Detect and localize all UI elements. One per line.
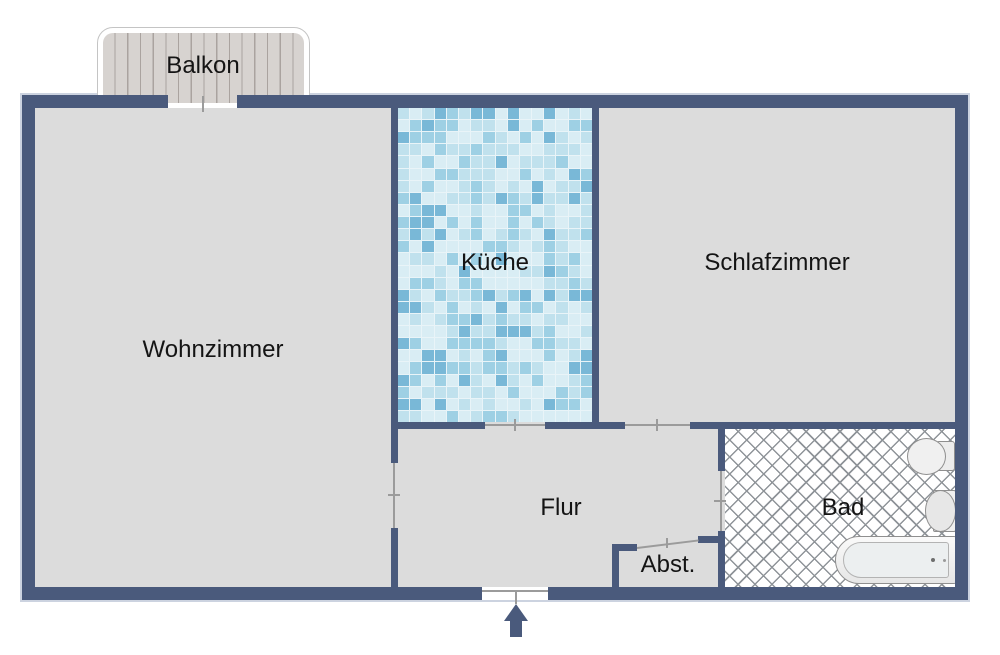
kitchen-tile bbox=[508, 205, 519, 216]
kitchen-tile bbox=[581, 387, 592, 398]
wall-wohnzimmer-kueche-flur-upper bbox=[391, 108, 398, 463]
kitchen-tile bbox=[459, 120, 470, 131]
kitchen-tile bbox=[471, 229, 482, 240]
room-label-bad: Bad bbox=[822, 494, 865, 522]
kitchen-tile bbox=[422, 132, 433, 143]
kitchen-tile bbox=[422, 399, 433, 410]
kitchen-tile bbox=[435, 338, 446, 349]
kitchen-tile bbox=[581, 411, 592, 422]
kitchen-tile bbox=[422, 266, 433, 277]
kitchen-tile bbox=[435, 302, 446, 313]
kitchen-tile bbox=[556, 253, 567, 264]
kitchen-tile bbox=[410, 338, 421, 349]
kitchen-tile bbox=[435, 217, 446, 228]
kitchen-tile bbox=[532, 411, 543, 422]
kitchen-tile bbox=[410, 108, 421, 119]
kitchen-tile bbox=[459, 290, 470, 301]
kitchen-tile bbox=[471, 350, 482, 361]
wall-wohnzimmer-flur-lower bbox=[391, 528, 398, 587]
kitchen-tile bbox=[398, 241, 409, 252]
kitchen-tile bbox=[532, 266, 543, 277]
kitchen-tile bbox=[556, 169, 567, 180]
kitchen-tile bbox=[496, 411, 507, 422]
kitchen-tile bbox=[410, 375, 421, 386]
kitchen-tile bbox=[398, 253, 409, 264]
kitchen-tile bbox=[398, 362, 409, 373]
kitchen-tile bbox=[483, 278, 494, 289]
kitchen-tile bbox=[544, 120, 555, 131]
kitchen-tile bbox=[435, 266, 446, 277]
kitchen-tile bbox=[435, 144, 446, 155]
kitchen-tile bbox=[520, 193, 531, 204]
kitchen-tile bbox=[410, 387, 421, 398]
kitchen-tile bbox=[556, 241, 567, 252]
kitchen-tile bbox=[398, 156, 409, 167]
kitchen-tile bbox=[422, 108, 433, 119]
kitchen-tile bbox=[581, 132, 592, 143]
room-label-kueche: Küche bbox=[461, 249, 529, 277]
kitchen-tile bbox=[569, 326, 580, 337]
kitchen-tile bbox=[422, 205, 433, 216]
kitchen-tile bbox=[435, 229, 446, 240]
kueche-door-tick bbox=[514, 419, 516, 431]
kitchen-tile bbox=[471, 156, 482, 167]
kitchen-tile bbox=[410, 326, 421, 337]
kitchen-tile bbox=[556, 144, 567, 155]
kitchen-tile bbox=[520, 229, 531, 240]
kitchen-tile bbox=[496, 399, 507, 410]
kitchen-tile bbox=[435, 181, 446, 192]
kitchen-tile bbox=[422, 290, 433, 301]
kitchen-tile bbox=[496, 169, 507, 180]
kitchen-tile bbox=[520, 278, 531, 289]
kitchen-tile bbox=[447, 290, 458, 301]
kitchen-tile bbox=[508, 290, 519, 301]
kitchen-tile bbox=[520, 338, 531, 349]
kitchen-tile bbox=[410, 302, 421, 313]
kitchen-tile bbox=[496, 290, 507, 301]
kitchen-tile bbox=[544, 156, 555, 167]
kitchen-tile bbox=[447, 108, 458, 119]
kitchen-tile bbox=[556, 108, 567, 119]
kitchen-tile bbox=[532, 278, 543, 289]
kitchen-tile bbox=[556, 156, 567, 167]
kitchen-tile bbox=[483, 362, 494, 373]
kitchen-tile bbox=[447, 362, 458, 373]
wall-outer-left bbox=[22, 95, 35, 600]
kitchen-tile bbox=[422, 120, 433, 131]
wall-outer-top-left bbox=[22, 95, 168, 108]
kitchen-tile bbox=[459, 350, 470, 361]
kitchen-tile bbox=[569, 193, 580, 204]
schlafzimmer-door-tick bbox=[656, 419, 658, 431]
kitchen-tile bbox=[508, 193, 519, 204]
kitchen-tile bbox=[435, 290, 446, 301]
kitchen-tile bbox=[556, 338, 567, 349]
wall-abstellraum-top-left-stub bbox=[612, 544, 637, 551]
kitchen-tile bbox=[410, 217, 421, 228]
kitchen-tile bbox=[532, 156, 543, 167]
kitchen-tile bbox=[508, 278, 519, 289]
kitchen-tile bbox=[471, 387, 482, 398]
kitchen-tile bbox=[398, 108, 409, 119]
kitchen-tile bbox=[581, 290, 592, 301]
kitchen-tile bbox=[398, 302, 409, 313]
kitchen-tile bbox=[447, 217, 458, 228]
kitchen-tile bbox=[483, 156, 494, 167]
kitchen-tile bbox=[520, 399, 531, 410]
kitchen-tile bbox=[459, 278, 470, 289]
kitchen-tile bbox=[508, 169, 519, 180]
kitchen-tile bbox=[410, 120, 421, 131]
kitchen-tile bbox=[398, 375, 409, 386]
kitchen-tile bbox=[520, 302, 531, 313]
kitchen-tile bbox=[544, 266, 555, 277]
kitchen-tile bbox=[496, 120, 507, 131]
kitchen-tile bbox=[435, 120, 446, 131]
wall-abstellraum-left bbox=[612, 545, 619, 587]
kitchen-tile bbox=[483, 411, 494, 422]
kitchen-tile bbox=[496, 350, 507, 361]
kitchen-tile bbox=[410, 253, 421, 264]
kitchen-tile bbox=[447, 253, 458, 264]
kitchen-tile bbox=[520, 290, 531, 301]
kitchen-tile bbox=[569, 241, 580, 252]
kitchen-tile bbox=[544, 362, 555, 373]
kitchen-tile bbox=[459, 205, 470, 216]
kitchen-tile bbox=[447, 156, 458, 167]
kitchen-tile bbox=[435, 399, 446, 410]
kitchen-tile bbox=[581, 326, 592, 337]
room-label-wohnzimmer: Wohnzimmer bbox=[143, 336, 284, 364]
wohnzimmer-door-tick bbox=[388, 494, 400, 496]
kitchen-tile bbox=[471, 217, 482, 228]
kitchen-tile bbox=[581, 229, 592, 240]
kitchen-tile bbox=[556, 350, 567, 361]
kitchen-tile bbox=[410, 132, 421, 143]
kitchen-tile bbox=[544, 205, 555, 216]
kitchen-tile bbox=[556, 193, 567, 204]
kitchen-tile bbox=[508, 120, 519, 131]
kitchen-tile bbox=[520, 144, 531, 155]
kitchen-tile bbox=[459, 338, 470, 349]
bathtub-drain bbox=[931, 558, 935, 562]
kitchen-tile bbox=[398, 266, 409, 277]
kitchen-tile bbox=[556, 399, 567, 410]
kitchen-tile bbox=[496, 156, 507, 167]
kitchen-tile bbox=[435, 241, 446, 252]
kitchen-tile bbox=[581, 217, 592, 228]
kitchen-tile bbox=[581, 193, 592, 204]
kitchen-tile bbox=[447, 241, 458, 252]
kitchen-tile bbox=[532, 169, 543, 180]
kitchen-tile bbox=[544, 411, 555, 422]
kitchen-tile bbox=[410, 181, 421, 192]
kitchen-tile bbox=[422, 278, 433, 289]
kitchen-tile bbox=[459, 302, 470, 313]
kitchen-tile bbox=[508, 156, 519, 167]
kitchen-tile bbox=[422, 350, 433, 361]
kitchen-tile bbox=[422, 217, 433, 228]
kitchen-tile bbox=[422, 375, 433, 386]
kitchen-tile bbox=[569, 387, 580, 398]
kitchen-tile bbox=[569, 266, 580, 277]
kitchen-tile bbox=[520, 350, 531, 361]
kitchen-tile bbox=[435, 387, 446, 398]
kitchen-tile bbox=[410, 411, 421, 422]
entrance-door-tick bbox=[515, 590, 517, 604]
kitchen-tile bbox=[435, 156, 446, 167]
kitchen-tile bbox=[544, 132, 555, 143]
kitchen-tile bbox=[483, 205, 494, 216]
room-label-schlafzimmer: Schlafzimmer bbox=[704, 249, 849, 277]
kitchen-tile bbox=[532, 362, 543, 373]
kitchen-tile bbox=[532, 314, 543, 325]
kitchen-tile bbox=[459, 326, 470, 337]
kitchen-tile bbox=[471, 278, 482, 289]
kitchen-tile bbox=[435, 253, 446, 264]
kitchen-tile bbox=[398, 314, 409, 325]
kitchen-tile bbox=[556, 205, 567, 216]
kitchen-tile bbox=[496, 108, 507, 119]
kitchen-tile bbox=[471, 314, 482, 325]
kitchen-tile bbox=[569, 362, 580, 373]
kitchen-tile bbox=[471, 302, 482, 313]
kitchen-tile bbox=[447, 399, 458, 410]
kitchen-tile bbox=[483, 120, 494, 131]
kitchen-tile bbox=[422, 387, 433, 398]
kitchen-tile bbox=[581, 375, 592, 386]
kitchen-tile bbox=[569, 302, 580, 313]
kitchen-tile bbox=[483, 193, 494, 204]
kitchen-tile bbox=[569, 156, 580, 167]
kitchen-tile bbox=[569, 169, 580, 180]
kitchen-tile bbox=[410, 156, 421, 167]
kitchen-tile bbox=[447, 350, 458, 361]
kitchen-tile bbox=[459, 362, 470, 373]
kitchen-tile bbox=[398, 338, 409, 349]
kitchen-tile bbox=[532, 387, 543, 398]
kitchen-tile bbox=[532, 375, 543, 386]
wall-outer-right bbox=[955, 95, 968, 600]
kitchen-tile bbox=[435, 411, 446, 422]
kitchen-tile bbox=[447, 169, 458, 180]
room-label-balkon: Balkon bbox=[166, 52, 239, 80]
kitchen-tile bbox=[532, 144, 543, 155]
kitchen-tile bbox=[556, 278, 567, 289]
floor-plan: Balkon Wohnzimmer Küche Schla bbox=[0, 0, 1000, 655]
kitchen-tile bbox=[520, 217, 531, 228]
kitchen-tile bbox=[544, 193, 555, 204]
kitchen-tile bbox=[556, 375, 567, 386]
kitchen-tile bbox=[471, 132, 482, 143]
kitchen-tile bbox=[483, 217, 494, 228]
kitchen-tile bbox=[520, 132, 531, 143]
kitchen-tile bbox=[520, 326, 531, 337]
kitchen-tile bbox=[496, 229, 507, 240]
kitchen-tile bbox=[544, 338, 555, 349]
kitchen-tile bbox=[532, 241, 543, 252]
kitchen-tile bbox=[556, 132, 567, 143]
kitchen-tile bbox=[520, 169, 531, 180]
kitchen-tile bbox=[422, 338, 433, 349]
kitchen-tile bbox=[496, 205, 507, 216]
kitchen-tile bbox=[581, 205, 592, 216]
kitchen-tile bbox=[544, 302, 555, 313]
kitchen-tile bbox=[520, 375, 531, 386]
kitchen-tile bbox=[483, 144, 494, 155]
kitchen-tile bbox=[569, 399, 580, 410]
kitchen-tile bbox=[532, 326, 543, 337]
kitchen-tile bbox=[496, 314, 507, 325]
kitchen-tile bbox=[483, 229, 494, 240]
kitchen-tile bbox=[471, 193, 482, 204]
kitchen-tile bbox=[459, 181, 470, 192]
kitchen-tile bbox=[496, 181, 507, 192]
kitchen-tile bbox=[544, 314, 555, 325]
kitchen-tile bbox=[569, 290, 580, 301]
kitchen-tile bbox=[422, 156, 433, 167]
kitchen-tile bbox=[483, 399, 494, 410]
kitchen-tile bbox=[569, 314, 580, 325]
kitchen-tile bbox=[398, 217, 409, 228]
kitchen-tile bbox=[398, 144, 409, 155]
kitchen-tile bbox=[581, 350, 592, 361]
kitchen-tile bbox=[556, 362, 567, 373]
kitchen-tile bbox=[496, 144, 507, 155]
kitchen-tile bbox=[422, 302, 433, 313]
kitchen-tile bbox=[508, 338, 519, 349]
kitchen-tile bbox=[422, 144, 433, 155]
kitchen-tile bbox=[532, 229, 543, 240]
wall-kueche-flur-left bbox=[391, 422, 485, 429]
kitchen-tile bbox=[422, 253, 433, 264]
kitchen-tile bbox=[581, 278, 592, 289]
kitchen-tile bbox=[459, 193, 470, 204]
kitchen-tile bbox=[447, 229, 458, 240]
kitchen-tile bbox=[435, 205, 446, 216]
kitchen-tile bbox=[435, 278, 446, 289]
kitchen-tile bbox=[459, 387, 470, 398]
kitchen-tile bbox=[581, 181, 592, 192]
kitchen-tile bbox=[410, 314, 421, 325]
kitchen-tile bbox=[459, 375, 470, 386]
sink-icon bbox=[925, 490, 956, 532]
kitchen-tile bbox=[410, 399, 421, 410]
kitchen-tile bbox=[410, 278, 421, 289]
kitchen-tile bbox=[422, 411, 433, 422]
kitchen-tile bbox=[532, 217, 543, 228]
kitchen-tile bbox=[556, 217, 567, 228]
wall-schlafzimmer-bad-top bbox=[690, 422, 955, 429]
kitchen-tile bbox=[556, 120, 567, 131]
entrance-arrow-stem bbox=[510, 620, 522, 637]
kitchen-tile bbox=[569, 411, 580, 422]
kitchen-tile bbox=[496, 338, 507, 349]
kitchen-tile bbox=[508, 108, 519, 119]
kitchen-tile bbox=[496, 362, 507, 373]
kitchen-tile bbox=[483, 314, 494, 325]
kitchen-tile bbox=[422, 229, 433, 240]
kitchen-tile bbox=[447, 205, 458, 216]
abstellraum-door-tick bbox=[666, 538, 668, 548]
kitchen-tile bbox=[556, 229, 567, 240]
kitchen-tile bbox=[459, 156, 470, 167]
kitchen-tile bbox=[398, 229, 409, 240]
wall-outer-bottom-right bbox=[548, 587, 968, 600]
kitchen-tile bbox=[532, 205, 543, 216]
kitchen-tile bbox=[544, 217, 555, 228]
room-label-abstellraum: Abst. bbox=[641, 551, 696, 579]
kitchen-tile bbox=[532, 181, 543, 192]
kitchen-tile bbox=[508, 217, 519, 228]
kitchen-tile bbox=[483, 302, 494, 313]
kitchen-tile bbox=[471, 120, 482, 131]
kitchen-tile bbox=[447, 302, 458, 313]
kitchen-tile bbox=[459, 132, 470, 143]
kitchen-tile bbox=[459, 399, 470, 410]
kitchen-tile bbox=[496, 217, 507, 228]
kitchen-tile bbox=[556, 314, 567, 325]
kitchen-tile bbox=[447, 181, 458, 192]
kitchen-tile bbox=[483, 387, 494, 398]
kitchen-tile bbox=[447, 132, 458, 143]
wall-bad-left-upper bbox=[718, 429, 725, 471]
bathtub-faucet-dot bbox=[943, 559, 946, 562]
kitchen-tile bbox=[398, 181, 409, 192]
kitchen-tile bbox=[410, 229, 421, 240]
toilet-icon bbox=[907, 438, 946, 475]
kitchen-tile bbox=[496, 326, 507, 337]
kitchen-tile bbox=[544, 108, 555, 119]
kitchen-tile bbox=[459, 144, 470, 155]
kitchen-tile bbox=[569, 181, 580, 192]
kitchen-tile bbox=[569, 278, 580, 289]
kitchen-tile bbox=[520, 387, 531, 398]
kitchen-tile bbox=[422, 326, 433, 337]
kitchen-tile bbox=[569, 375, 580, 386]
kitchen-tile bbox=[532, 108, 543, 119]
kitchen-tile bbox=[410, 350, 421, 361]
kitchen-tile bbox=[398, 120, 409, 131]
kitchen-tile bbox=[508, 181, 519, 192]
kitchen-tile bbox=[569, 108, 580, 119]
kitchen-tile bbox=[496, 193, 507, 204]
kitchen-tile bbox=[459, 169, 470, 180]
wall-kueche-flur-right bbox=[545, 422, 625, 429]
kitchen-tile bbox=[544, 375, 555, 386]
kitchen-tile bbox=[556, 302, 567, 313]
kitchen-tile bbox=[410, 362, 421, 373]
kitchen-tile bbox=[398, 132, 409, 143]
kitchen-tile bbox=[459, 229, 470, 240]
kitchen-tile bbox=[447, 144, 458, 155]
kitchen-tile bbox=[435, 314, 446, 325]
kitchen-tile bbox=[398, 350, 409, 361]
kitchen-tile bbox=[508, 302, 519, 313]
kitchen-tile bbox=[422, 169, 433, 180]
kitchen-tile bbox=[544, 278, 555, 289]
kitchen-tile bbox=[447, 411, 458, 422]
kitchen-tile bbox=[532, 302, 543, 313]
kitchen-tile bbox=[520, 108, 531, 119]
entrance-arrow-icon bbox=[504, 604, 528, 621]
kitchen-tile bbox=[410, 266, 421, 277]
kitchen-tile bbox=[556, 266, 567, 277]
kitchen-tile bbox=[447, 387, 458, 398]
kitchen-tile bbox=[471, 290, 482, 301]
kitchen-tile bbox=[532, 399, 543, 410]
